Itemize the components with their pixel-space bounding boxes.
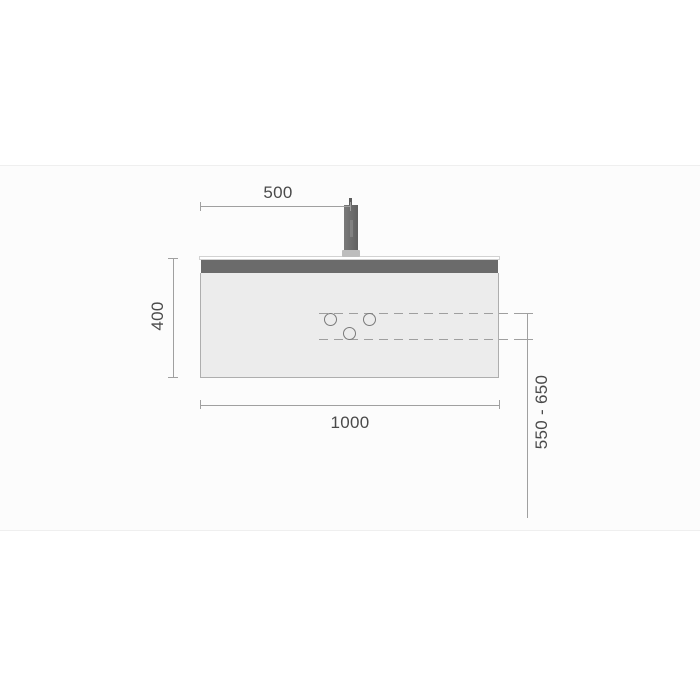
drain-hole (324, 313, 337, 326)
dimension-line-1000 (200, 405, 500, 406)
dimension-line-550-650 (527, 313, 528, 518)
dimension-label-top: 500 (238, 184, 318, 202)
dimension-tick (200, 202, 201, 211)
drain-hole (343, 327, 356, 340)
dimension-tick (168, 377, 178, 378)
dimension-tick (168, 258, 178, 259)
drain-reference-line-upper (319, 313, 533, 314)
tap-spout-detail (350, 220, 353, 237)
tap-base (342, 250, 360, 257)
product-drawing-page: 500 400 1000 550 - 650 (0, 0, 700, 700)
dimension-line-500 (200, 206, 351, 207)
dimension-label-bottom: 1000 (310, 414, 390, 432)
dimension-tick (499, 400, 500, 409)
dimension-label-left: 400 (149, 276, 167, 356)
dimension-tick (522, 313, 532, 314)
dimension-tick (350, 202, 351, 211)
dimension-tick (200, 400, 201, 409)
cabinet-top-rail (201, 260, 498, 273)
dimension-line-400 (173, 258, 174, 378)
dimension-label-right: 550 - 650 (533, 352, 551, 472)
vanity-cabinet (200, 273, 499, 378)
drain-hole (363, 313, 376, 326)
dimension-tick (522, 339, 532, 340)
